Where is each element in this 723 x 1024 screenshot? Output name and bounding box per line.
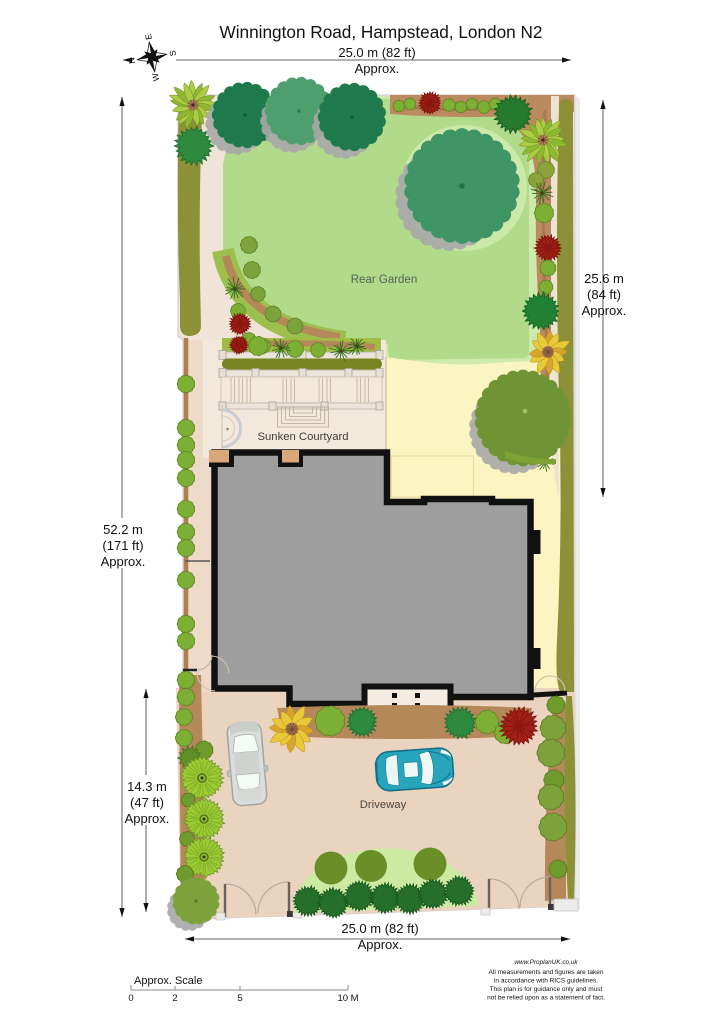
svg-text:www.ProplanUK.co.uk: www.ProplanUK.co.uk [514,959,578,966]
svg-text:(171 ft): (171 ft) [102,538,143,553]
svg-text:Winnington Road, Hampstead, Lo: Winnington Road, Hampstead, London N2 [220,22,543,42]
svg-text:(84 ft): (84 ft) [587,287,621,302]
svg-text:Approx.: Approx. [101,554,146,569]
svg-text:2: 2 [172,993,177,1004]
svg-text:not be relied upon as a statem: not be relied upon as a statement of fac… [487,995,605,1002]
svg-text:Rear Garden: Rear Garden [351,274,417,286]
svg-text:This plan is for guidance only: This plan is for guidance only and must [490,986,603,993]
svg-text:25.0 m (82 ft): 25.0 m (82 ft) [341,921,418,936]
svg-text:W: W [150,72,161,82]
svg-text:Approx.: Approx. [358,937,403,952]
svg-text:(47 ft): (47 ft) [130,795,164,810]
svg-text:Approx.: Approx. [355,61,400,76]
svg-text:in accordance with RICS guidel: in accordance with RICS guidelines. [494,978,598,985]
svg-text:25.6 m: 25.6 m [584,271,624,286]
svg-text:52.2 m: 52.2 m [103,522,143,537]
svg-text:Approx.: Approx. [582,303,627,318]
svg-text:Approx.: Approx. [125,811,170,826]
svg-text:All measurements and figures a: All measurements and figures are taken [489,969,604,976]
svg-text:14.3 m: 14.3 m [127,779,167,794]
svg-text:10 M: 10 M [337,993,358,1004]
svg-text:Sunken Courtyard: Sunken Courtyard [257,431,348,443]
svg-text:Approx. Scale: Approx. Scale [134,975,202,987]
svg-text:5: 5 [237,993,242,1004]
svg-text:25.0 m (82 ft): 25.0 m (82 ft) [338,45,415,60]
svg-text:0: 0 [128,993,133,1004]
svg-text:Driveway: Driveway [360,799,407,811]
